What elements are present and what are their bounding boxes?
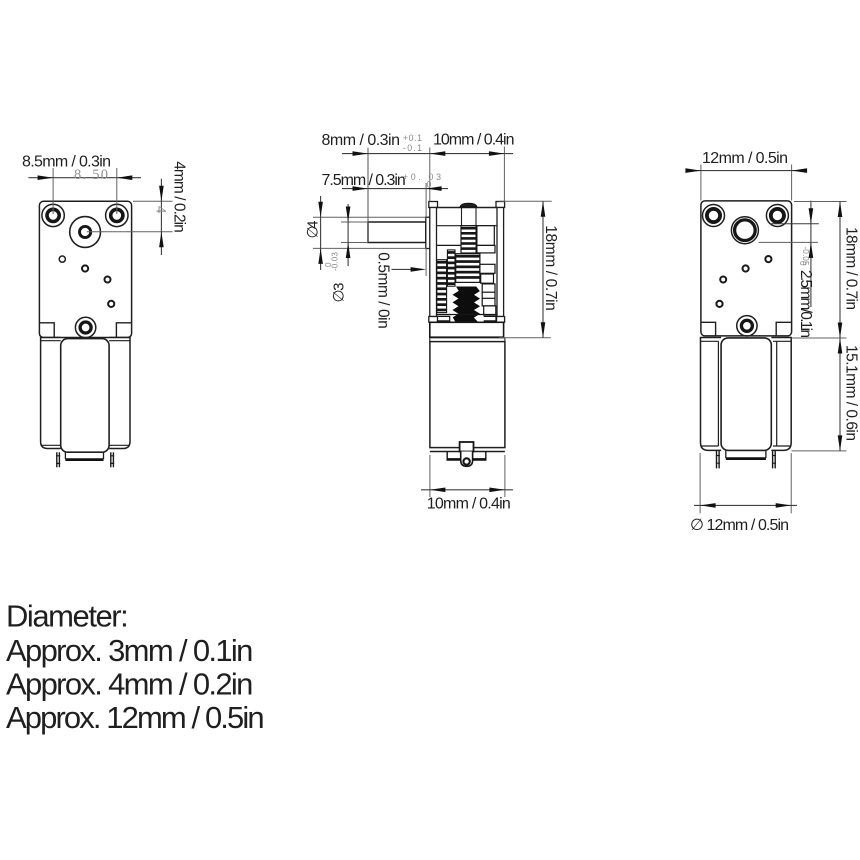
- svg-text:15.1mm / 0.6in: 15.1mm / 0.6in: [842, 345, 859, 441]
- svg-text:0.5mm / 0in: 0.5mm / 0in: [374, 252, 391, 328]
- svg-text:10mm / 0.4in: 10mm / 0.4in: [433, 132, 515, 149]
- svg-text:∅3: ∅3: [331, 283, 348, 303]
- svg-text:10mm / 0.4in: 10mm / 0.4in: [427, 496, 511, 513]
- svg-text:18mm / 0.7in: 18mm / 0.7in: [842, 227, 859, 310]
- svg-text:-0.1: -0.1: [403, 143, 422, 153]
- svg-text:4mm / 0.2in: 4mm / 0.2in: [170, 161, 187, 233]
- svg-text:4: 4: [153, 206, 169, 214]
- svg-text:8mm / 0.3in: 8mm / 0.3in: [322, 132, 401, 149]
- svg-text:Approx. 12mm / 0.5in: Approx. 12mm / 0.5in: [6, 700, 265, 735]
- svg-text:7.5mm / 0.3in: 7.5mm / 0.3in: [322, 172, 406, 189]
- svg-text:Approx. 3mm / 0.1in: Approx. 3mm / 0.1in: [6, 633, 253, 668]
- svg-text:Diameter:: Diameter:: [6, 599, 129, 634]
- svg-text:0: 0: [427, 180, 432, 190]
- svg-text:+0.1: +0.1: [403, 133, 422, 143]
- svg-text:18mm / 0.7in: 18mm / 0.7in: [542, 225, 559, 310]
- svg-text:-0.03: -0.03: [331, 252, 340, 271]
- svg-text:Approx. 4mm / 0.2in: Approx. 4mm / 0.2in: [6, 667, 253, 702]
- svg-text:0: 0: [798, 261, 807, 266]
- svg-text:2.5mm/0.1in: 2.5mm/0.1in: [797, 270, 814, 338]
- svg-text:∅4: ∅4: [305, 221, 322, 239]
- svg-text:∅ 12mm / 0.5in: ∅ 12mm / 0.5in: [690, 517, 789, 534]
- svg-text:12mm / 0.5in: 12mm / 0.5in: [702, 150, 788, 167]
